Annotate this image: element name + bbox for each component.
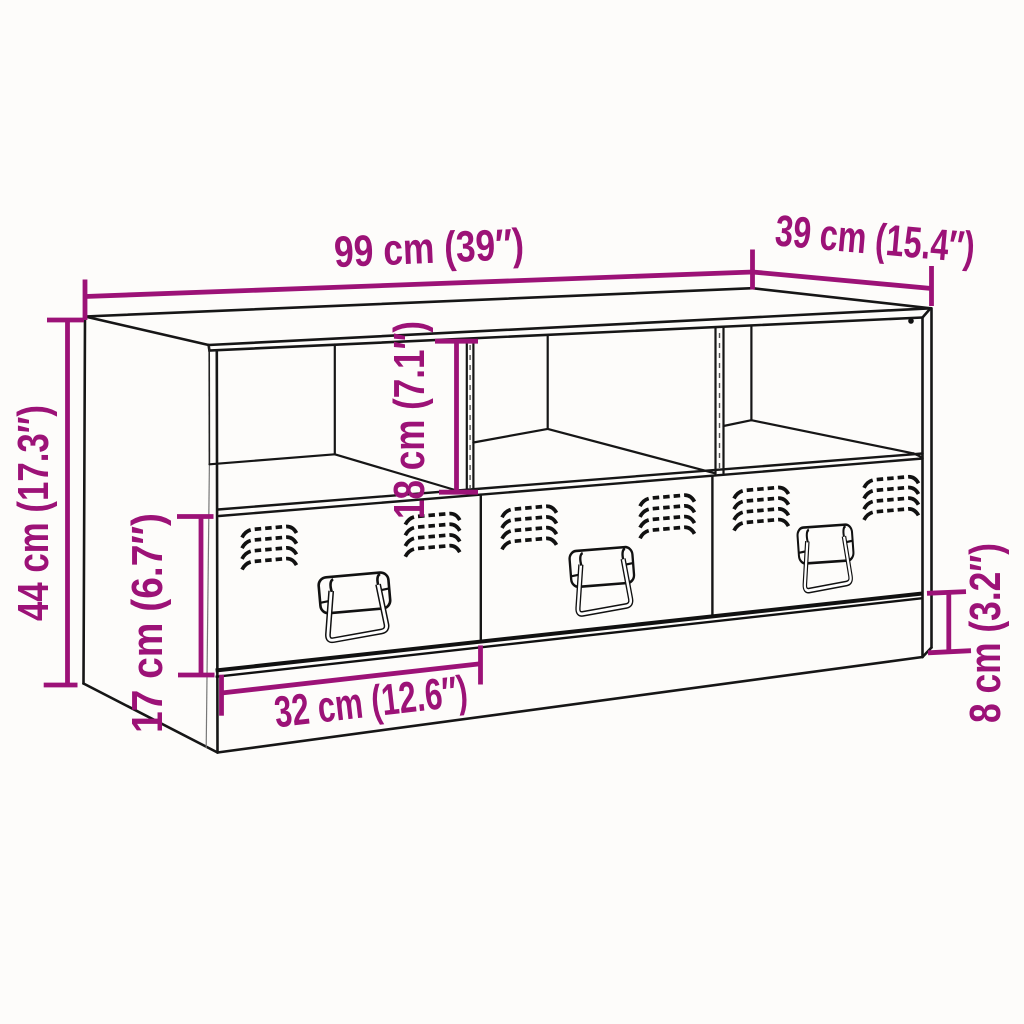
svg-text:44 cm (17.3″): 44 cm (17.3″) xyxy=(9,405,58,621)
svg-text:17 cm (6.7″): 17 cm (6.7″) xyxy=(123,513,172,733)
svg-text:8 cm (3.2″): 8 cm (3.2″) xyxy=(961,543,1010,723)
svg-text:99 cm (39″): 99 cm (39″) xyxy=(333,220,525,277)
svg-text:18 cm (7.1″): 18 cm (7.1″) xyxy=(385,321,434,519)
